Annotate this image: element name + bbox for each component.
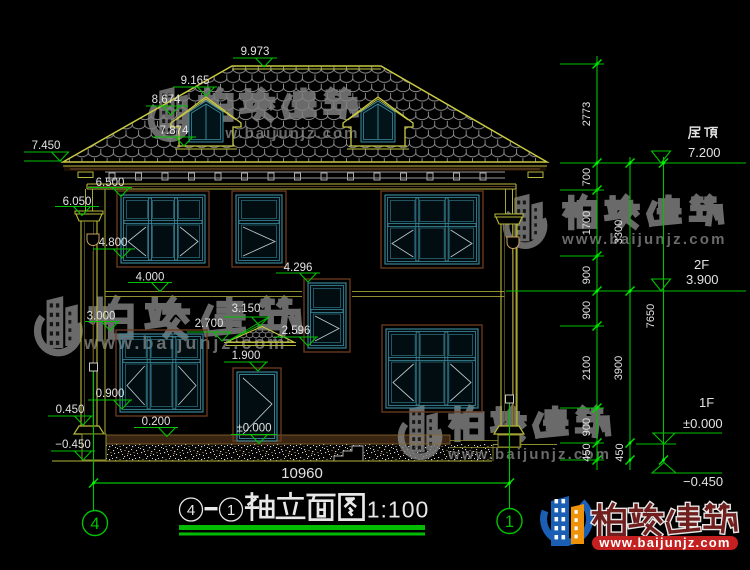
svg-text:7.450: 7.450 <box>32 140 61 152</box>
svg-text:−0.450: −0.450 <box>55 439 91 451</box>
svg-text:4: 4 <box>90 515 99 533</box>
svg-text:7.874: 7.874 <box>160 125 189 137</box>
svg-text:8.674: 8.674 <box>152 94 181 106</box>
svg-text:0.900: 0.900 <box>96 388 125 400</box>
svg-text:3.150: 3.150 <box>232 303 261 315</box>
svg-text:7650: 7650 <box>645 304 657 328</box>
svg-text:9.973: 9.973 <box>241 46 270 58</box>
svg-text:1:100: 1:100 <box>367 497 430 523</box>
svg-text:9.165: 9.165 <box>181 75 210 87</box>
svg-text:2F: 2F <box>694 257 709 272</box>
svg-text:1: 1 <box>505 513 514 531</box>
svg-text:2.596: 2.596 <box>282 325 311 337</box>
svg-text:3.900: 3.900 <box>686 272 719 287</box>
svg-text:4: 4 <box>187 502 195 519</box>
svg-text:7.200: 7.200 <box>688 145 721 160</box>
svg-text:3300: 3300 <box>613 220 625 244</box>
svg-text:900: 900 <box>581 301 593 319</box>
svg-text:4.296: 4.296 <box>284 262 313 274</box>
svg-text:3900: 3900 <box>613 356 625 380</box>
svg-text:www.baijunjz.com: www.baijunjz.com <box>598 535 730 550</box>
svg-text:450: 450 <box>581 443 593 461</box>
svg-text:700: 700 <box>581 168 593 186</box>
svg-text:1.900: 1.900 <box>232 350 261 362</box>
svg-text:1F: 1F <box>699 395 714 410</box>
svg-text:1700: 1700 <box>581 211 593 235</box>
svg-text:10960: 10960 <box>281 465 323 482</box>
svg-text:900: 900 <box>581 266 593 284</box>
svg-text:±0.000: ±0.000 <box>683 416 723 431</box>
svg-text:1: 1 <box>227 502 235 519</box>
svg-text:3.000: 3.000 <box>87 311 116 323</box>
svg-text:±0.000: ±0.000 <box>236 423 271 435</box>
svg-text:0.200: 0.200 <box>142 416 171 428</box>
svg-text:2.700: 2.700 <box>195 318 224 330</box>
svg-text:4.000: 4.000 <box>136 272 165 284</box>
svg-text:450: 450 <box>614 443 626 461</box>
svg-text:−0.450: −0.450 <box>683 474 723 489</box>
svg-text:900: 900 <box>581 418 593 436</box>
svg-text:4.800: 4.800 <box>99 237 128 249</box>
svg-text:0.450: 0.450 <box>56 404 85 416</box>
svg-text:2773: 2773 <box>581 102 593 126</box>
svg-text:2100: 2100 <box>581 356 593 380</box>
